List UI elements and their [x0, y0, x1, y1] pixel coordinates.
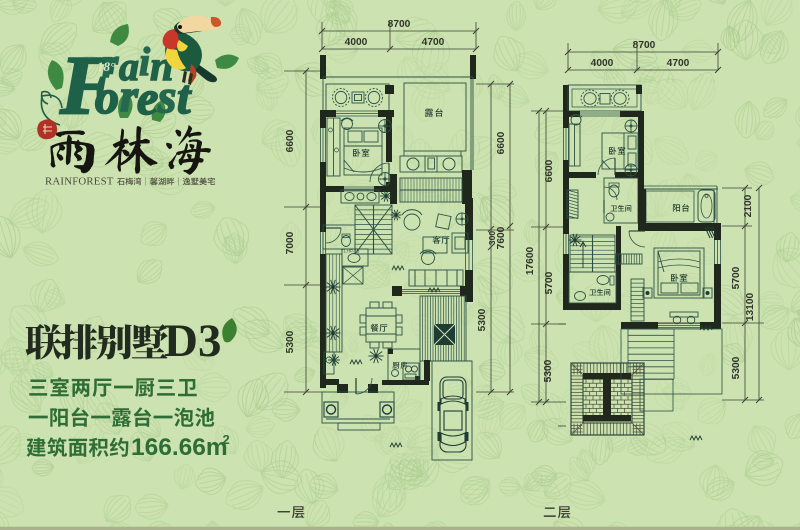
svg-text:D3: D3: [164, 315, 221, 367]
svg-text:2: 2: [223, 432, 230, 447]
svg-text:4700: 4700: [667, 58, 690, 69]
svg-text:5700: 5700: [731, 266, 742, 289]
svg-text:4000: 4000: [345, 37, 368, 48]
svg-text:5300: 5300: [285, 330, 296, 353]
svg-text:4700: 4700: [422, 37, 445, 48]
svg-text:2100: 2100: [743, 194, 754, 217]
svg-text:s: s: [157, 71, 176, 123]
svg-text:o: o: [95, 71, 119, 124]
svg-text:6600: 6600: [285, 129, 296, 152]
svg-text:4000: 4000: [591, 58, 614, 69]
svg-text:7600: 7600: [496, 226, 507, 249]
svg-text:6600: 6600: [544, 159, 555, 182]
svg-text:8700: 8700: [633, 40, 656, 51]
svg-text:5700: 5700: [544, 271, 555, 294]
svg-text:7000: 7000: [285, 231, 296, 254]
svg-text:6600: 6600: [496, 131, 507, 154]
svg-text:166.66m: 166.66m: [131, 434, 228, 461]
svg-text:RAINFOREST: RAINFOREST: [45, 176, 114, 188]
svg-text:T1.HP-2B: T1.HP-2B: [341, 249, 360, 254]
svg-text:8700: 8700: [388, 19, 411, 30]
svg-text:18°: 18°: [97, 59, 116, 74]
svg-text:5300: 5300: [477, 308, 488, 331]
svg-text:17600: 17600: [525, 247, 536, 276]
svg-text:5300: 5300: [731, 356, 742, 379]
svg-text:13100: 13100: [745, 293, 756, 322]
svg-text:5300: 5300: [543, 359, 554, 382]
svg-text:e: e: [137, 72, 158, 125]
